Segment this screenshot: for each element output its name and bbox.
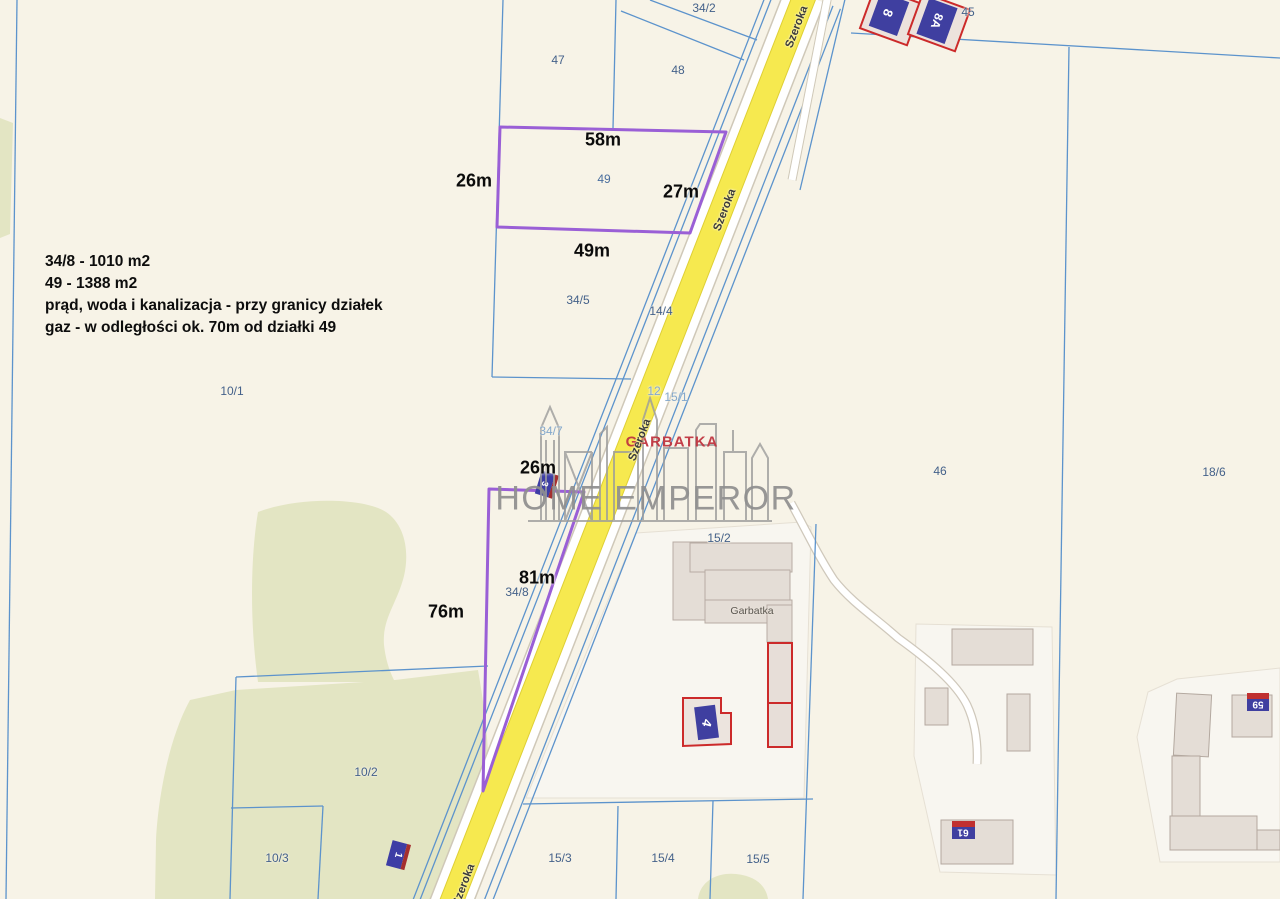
building-block xyxy=(705,570,790,602)
green-area-bottom xyxy=(698,874,768,899)
building-block xyxy=(1170,816,1257,850)
building-block xyxy=(1257,830,1280,850)
plaque-59 xyxy=(1247,699,1269,711)
green-area-left-sliver xyxy=(0,118,13,238)
plaque-59-red-band xyxy=(1247,693,1269,699)
boundary-34-5-34-7 xyxy=(492,377,631,379)
info-line-gas: gaz - w odległości ok. 70m od działki 49 xyxy=(45,317,383,339)
plaque-61 xyxy=(952,827,975,839)
building-red-outlined-tall xyxy=(768,643,792,747)
green-area-upper xyxy=(252,501,406,682)
info-line-utilities: prąd, woda i kanalizacja - przy granicy … xyxy=(45,295,383,317)
building-block xyxy=(925,688,948,725)
building-block xyxy=(690,543,792,572)
plaque-61-red-band xyxy=(952,821,975,827)
boundary-34-2-b xyxy=(621,11,744,60)
info-line-area-34-8: 34/8 - 1010 m2 xyxy=(45,251,383,273)
building-block xyxy=(1007,694,1030,751)
cadastral-map[interactable]: GARBATKA HOME EMPEROR 34/8 - 1010 m2 49 … xyxy=(0,0,1280,899)
building-61 xyxy=(941,820,1013,864)
building-block xyxy=(1173,693,1211,757)
building-block xyxy=(767,605,792,642)
boundary-46-18-6 xyxy=(1056,47,1069,899)
watermark-brand: HOME EMPEROR xyxy=(495,480,796,519)
plot-info-box: 34/8 - 1010 m2 49 - 1388 m2 prąd, woda i… xyxy=(45,251,383,339)
boundary-15x-top xyxy=(523,799,813,804)
building-4-address-plate xyxy=(694,705,719,740)
watermark-location: GARBATKA xyxy=(626,434,719,451)
green-area-lower xyxy=(155,670,489,899)
boundary-15-3-15-4 xyxy=(616,806,618,899)
building-block xyxy=(952,629,1033,665)
boundary-34-2-a xyxy=(650,0,757,40)
boundary-47-48 xyxy=(613,0,616,128)
highlighted-parcel-49 xyxy=(497,127,726,233)
building-block xyxy=(1172,756,1200,817)
info-line-area-49: 49 - 1388 m2 xyxy=(45,273,383,295)
